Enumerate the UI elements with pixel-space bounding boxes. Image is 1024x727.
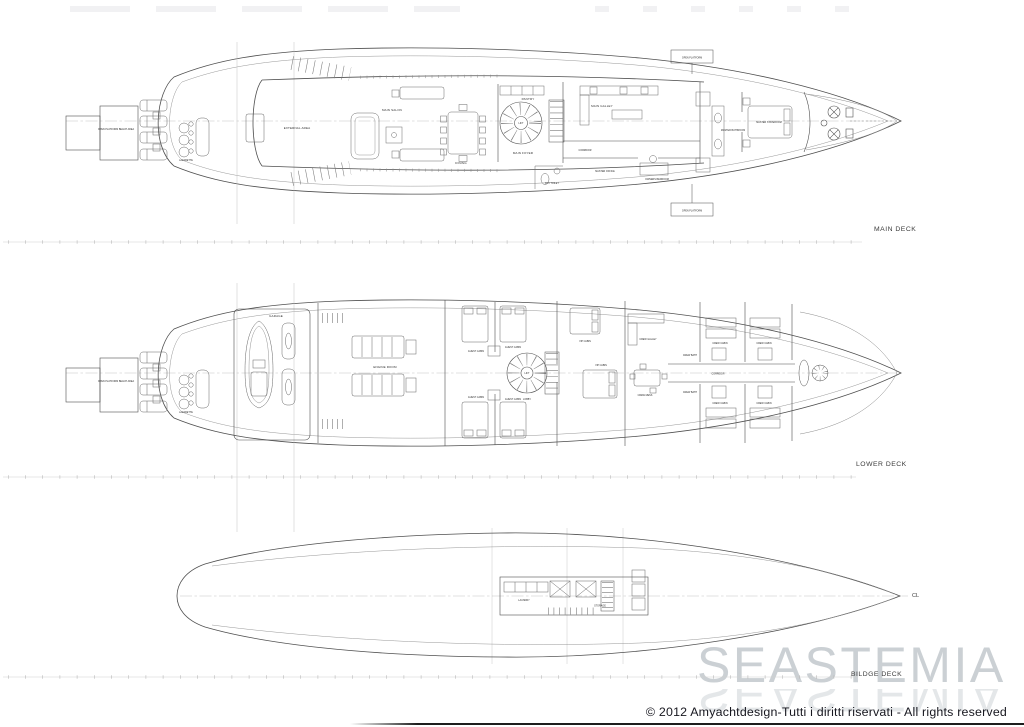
crew-mess-area xyxy=(628,314,667,393)
room-label-dining: DINING xyxy=(455,161,467,165)
room-label-crew-cabin-1: CREW CABIN xyxy=(712,342,728,345)
main-deck-plan: OPEN PLATFORM BEACH AREA LAZARETTE EXTER… xyxy=(66,42,901,224)
salon-furniture xyxy=(351,87,444,161)
room-label-main-galley: MAIN GALLEY xyxy=(591,104,613,108)
room-label-lazarette-lower: LAZARETTE xyxy=(179,411,193,414)
room-label-vip-cabin-1: VIP CABIN xyxy=(579,340,591,343)
lower-deck-plan: OPEN PLATFORM BEACH AREA LAZARETTE GARAG… xyxy=(66,283,901,532)
sun-loungers xyxy=(140,352,167,412)
room-label-crew-galley: CREW GALLEY xyxy=(639,338,657,341)
guest-cabin-walls xyxy=(495,301,625,446)
guest-beds xyxy=(462,306,526,438)
room-label-lobby: LOBBY xyxy=(523,398,531,401)
aft-seating xyxy=(179,114,264,157)
dining-set xyxy=(441,105,486,162)
room-label-main-foyer: MAIN FOYER xyxy=(513,151,534,155)
garage xyxy=(234,309,310,440)
room-label-crew-bath-1: CREW BATH xyxy=(683,354,697,357)
callout-label-open-platform-top: OPEN PLATFORM xyxy=(682,57,702,60)
room-label-day-toilet: DAY TOILET xyxy=(545,182,559,185)
room-label-corridor: CORRIDOR xyxy=(578,149,591,152)
room-label-guest-cabin-3: GUEST CABIN xyxy=(505,346,521,349)
main-deck-title: MAIN DECK xyxy=(874,226,916,233)
scale-baselines xyxy=(3,242,862,677)
sheet-edge-line xyxy=(350,723,1024,726)
room-label-main-salon: MAIN SALON xyxy=(382,108,402,112)
drawing-sheet: SEASTEMIA SEASTEMIA xyxy=(0,0,1024,727)
room-label-master-office: MASTER OFFICE xyxy=(595,170,615,173)
master-bathroom-fittings xyxy=(696,92,742,172)
hull-outline xyxy=(66,300,901,446)
station-lines xyxy=(237,283,294,532)
room-label-lazarette: LAZARETTE xyxy=(179,159,193,162)
room-label-crew-cabin-3: CREW CABIN xyxy=(712,402,728,405)
centerline-label: CL xyxy=(912,593,919,599)
bilge-deck-plan: LAUNDRY STORAGE xyxy=(177,528,908,664)
room-label-laundry: LAUNDRY xyxy=(518,599,530,602)
room-label-pantry: PANTRY xyxy=(522,97,535,101)
room-label-engine-room: ENGINE ROOM xyxy=(373,365,397,369)
room-label-lift: LIFT xyxy=(519,122,524,125)
pantry-counter xyxy=(500,86,544,95)
room-label-guest-cabin-1: GUEST CABIN xyxy=(468,350,484,353)
sun-loungers xyxy=(140,100,167,160)
room-label-guest-cabin-4: GUEST CABIN xyxy=(505,398,521,401)
room-label-crew-cabin-2: CREW CABIN xyxy=(756,342,772,345)
room-label-garage: GARAGE xyxy=(269,314,283,318)
room-label-owners-bedroom: OWNERS BEDROOM xyxy=(645,178,669,181)
superstructure xyxy=(253,76,704,171)
crew-corridor-walls xyxy=(668,302,795,443)
bilge-deck-title: BILDGE DECK xyxy=(851,671,902,678)
vip-beds xyxy=(570,308,617,398)
jet-skis xyxy=(282,323,295,405)
anchor-winches xyxy=(821,106,853,140)
room-label-guest-cabin-2: GUEST CABIN xyxy=(468,396,484,399)
hull-outline xyxy=(177,533,908,657)
stern-platform xyxy=(66,106,138,160)
general-arrangement-drawing: OPEN PLATFORM BEACH AREA LAZARETTE EXTER… xyxy=(0,0,1024,727)
station-lines xyxy=(237,42,294,224)
aft-seating xyxy=(179,370,209,409)
lower-deck-title: LOWER DECK xyxy=(856,461,907,468)
stern-platform xyxy=(66,358,138,412)
room-label-crew-cabin-4: CREW CABIN xyxy=(756,402,772,405)
room-label-open-platform-beach-area-lower: OPEN PLATFORM BEACH AREA xyxy=(98,380,135,383)
room-label-vip-cabin-2: VIP CABIN xyxy=(595,364,607,367)
room-label-lift-lower: LIFT xyxy=(525,372,530,375)
room-label-crew-corridor: CORRIDOR xyxy=(711,373,724,376)
room-label-crew-bath-2: CREW BATH xyxy=(683,391,697,394)
room-label-storage: STORAGE xyxy=(594,605,606,608)
room-label-external-area: EXTERNAL AREA xyxy=(284,126,311,130)
garage-tender xyxy=(245,321,273,408)
room-label-crew-mess: CREW MESS xyxy=(638,394,653,397)
room-label-master-stateroom: MASTER STATEROOM xyxy=(756,121,781,124)
room-label-master-bathroom: MASTER BATHROOM xyxy=(721,129,745,132)
laundry-compartment xyxy=(500,570,648,615)
callout-label-open-platform-bottom: OPEN PLATFORM xyxy=(682,210,702,213)
copyright-text: © 2012 Amyachtdesign-Tutti i diritti ris… xyxy=(646,705,1007,719)
room-label-open-platform-beach-area: OPEN PLATFORM BEACH AREA xyxy=(98,128,135,131)
